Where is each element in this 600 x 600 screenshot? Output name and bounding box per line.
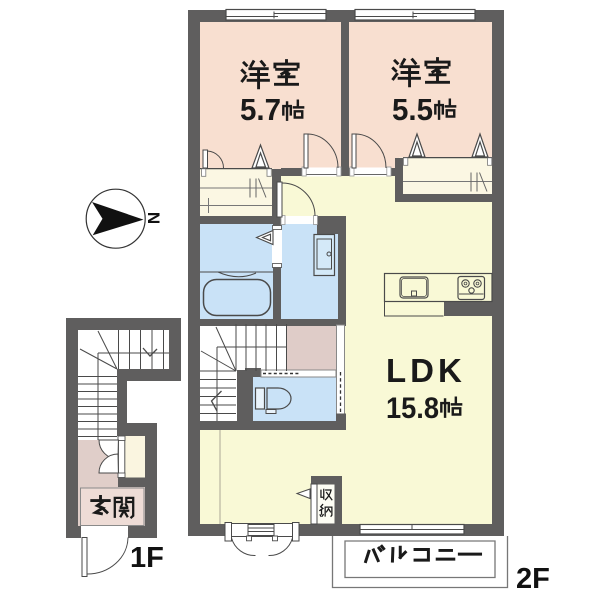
svg-text:N: N: [144, 212, 163, 224]
svg-text:LDK: LDK: [386, 352, 466, 389]
svg-text:5.7: 5.7: [240, 92, 281, 127]
svg-text:15.8: 15.8: [386, 392, 439, 425]
svg-text:1F: 1F: [130, 542, 164, 574]
svg-text:2F: 2F: [516, 563, 550, 595]
svg-text:5.5: 5.5: [392, 92, 433, 127]
